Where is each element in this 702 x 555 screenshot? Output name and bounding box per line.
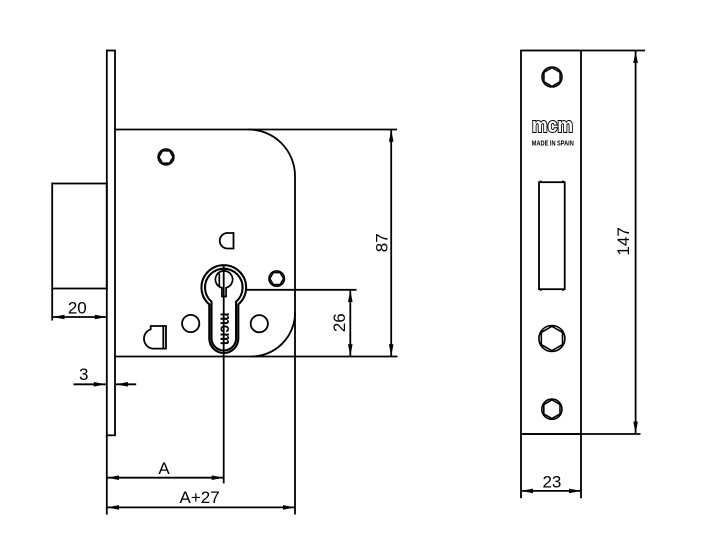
svg-text:3: 3	[79, 365, 88, 384]
svg-text:MADE IN SPAIN: MADE IN SPAIN	[532, 141, 574, 148]
svg-text:147: 147	[614, 227, 633, 255]
svg-text:20: 20	[68, 299, 87, 318]
svg-text:87: 87	[373, 233, 392, 252]
svg-text:mcm: mcm	[532, 115, 573, 137]
svg-text:23: 23	[542, 472, 561, 491]
svg-text:mcm: mcm	[217, 313, 234, 346]
svg-text:26: 26	[330, 313, 349, 332]
svg-text:A+27: A+27	[180, 488, 220, 507]
svg-text:A: A	[158, 459, 170, 478]
